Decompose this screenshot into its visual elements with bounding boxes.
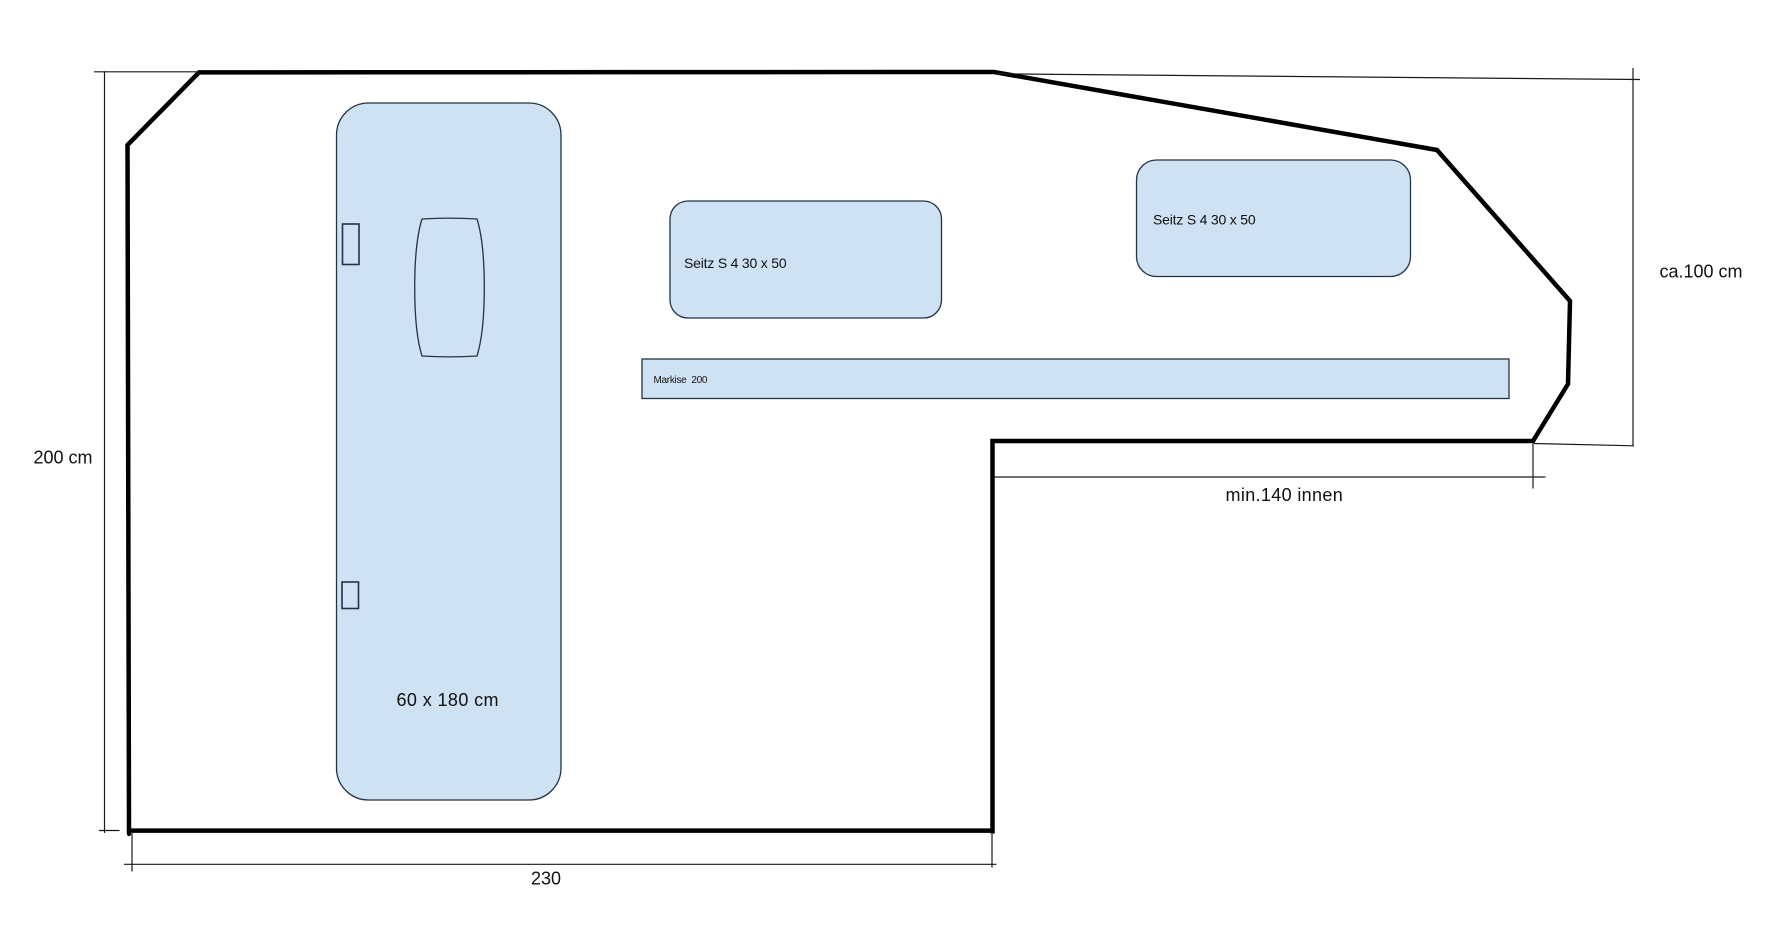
svg-text:Seitz S 4 30 x 50: Seitz S 4 30 x 50	[684, 255, 787, 271]
svg-text:200 cm: 200 cm	[34, 448, 93, 468]
svg-text:Markise 200: Markise 200	[654, 375, 708, 386]
svg-text:230: 230	[531, 869, 561, 889]
svg-text:Seitz S 4 30 x 50: Seitz S 4 30 x 50	[1153, 212, 1256, 228]
svg-text:60 x 180 cm: 60 x 180 cm	[397, 690, 499, 710]
svg-text:ca.100 cm: ca.100 cm	[1660, 262, 1743, 282]
svg-text:min.140 innen: min.140 innen	[1226, 485, 1344, 505]
